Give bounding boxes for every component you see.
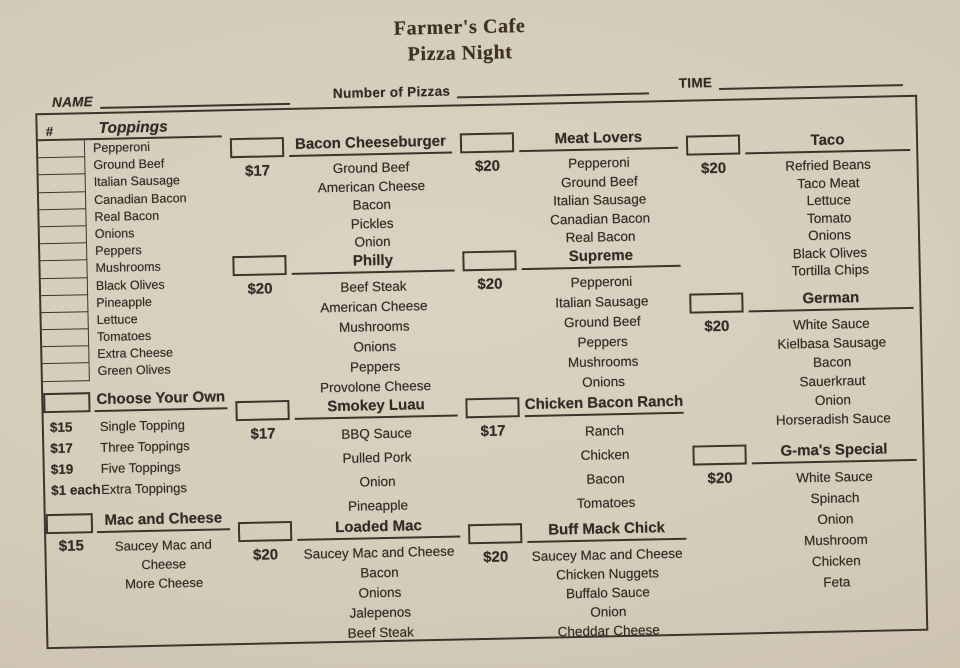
topping-label: Tomatoes <box>89 328 152 346</box>
pizza-name: G-ma's Special <box>751 439 916 463</box>
pizza-name: Loaded Mac <box>297 516 460 540</box>
ingredient-line: Chicken <box>525 441 684 468</box>
ingredient-line: Feta <box>754 569 919 593</box>
ingredient-line: Cheddar Cheese <box>529 619 688 641</box>
quantity-box <box>689 292 743 313</box>
menu-grid: # Toppings Pepperoni Ground Beef Italian… <box>35 95 928 649</box>
pizza-ingredients: Saucey Mac and CheeseBaconOnionsJalepeno… <box>297 541 462 644</box>
ingredient-line: Beef Steak <box>299 621 462 644</box>
pizza-card-body: $20 PepperoniItalian SausageGround BeefP… <box>463 270 683 395</box>
pizza-price: $20 <box>238 544 294 645</box>
pizza-ingredients: PepperoniGround BeefItalian SausageCanad… <box>519 153 680 249</box>
paper-order-form: Farmer's Cafe Pizza Night NAME Number of… <box>0 0 960 668</box>
toppings-table-header: # Toppings <box>37 111 222 141</box>
ingredient-line: Onion <box>296 468 459 495</box>
topping-count-box <box>39 175 86 193</box>
pizza-card-head: German <box>689 287 913 313</box>
pizza-column-3: Meat Lovers $20 PepperoniGround BeefItal… <box>451 102 688 639</box>
pizza-ingredients: PepperoniItalian SausageGround BeefPeppe… <box>522 270 683 393</box>
pizza-card-body: $20 Beef SteakAmerican CheeseMushroomsOn… <box>233 275 457 400</box>
pizza-card: Loaded Mac $20 Saucey Mac and CheeseBaco… <box>238 516 463 646</box>
quantity-box <box>460 132 514 153</box>
pizza-card-head: G-ma's Special <box>692 439 916 465</box>
quantity-box <box>46 513 93 534</box>
option-price: $19 <box>45 461 101 477</box>
pizza-card-body: $20 Saucey Mac and CheeseChicken Nuggets… <box>468 543 688 643</box>
ingredient-line: Onions <box>524 370 683 393</box>
topping-label: Pepperoni <box>85 139 150 158</box>
price-option-row: $1 each Extra Toppings <box>45 476 229 501</box>
choose-your-own-head: Choose Your Own <box>43 388 227 413</box>
pizza-price: $20 <box>460 156 516 250</box>
pizza-name: Meat Lovers <box>519 128 678 152</box>
option-price: $15 <box>44 419 100 435</box>
choose-your-own-options: $15 Single Topping $17 Three Toppings $1… <box>44 413 230 501</box>
quantity-box <box>462 250 516 271</box>
pizza-card-body: $17 Ground BeefAmerican CheeseBaconPickl… <box>230 158 454 255</box>
topping-label: Extra Cheese <box>89 345 173 364</box>
topping-count-box <box>43 364 90 382</box>
mac-and-cheese-title: Mac and Cheese <box>97 509 230 533</box>
number-of-pizzas-write-in-line <box>457 79 649 98</box>
topping-label: Onions <box>87 225 135 243</box>
pizza-column-2: Bacon Cheeseburger $17 Ground BeefAmeric… <box>221 107 462 644</box>
ingredient-line: Tortilla Chips <box>748 260 913 281</box>
pizza-name: Supreme <box>521 245 680 269</box>
pizza-card-head: Bacon Cheeseburger <box>230 133 452 159</box>
ingredient-line: Saucey Mac and Cheese <box>527 543 686 565</box>
mac-and-cheese-ingredients: Saucey Mac and CheeseMore Cheese <box>96 534 231 594</box>
pizza-card-head: Buff Mack Chick <box>468 518 686 544</box>
pizza-card: German $20 White SauceKielbasa SausageBa… <box>689 287 916 431</box>
ingredient-line: More Cheese <box>97 572 231 594</box>
pizza-ingredients: Beef SteakAmerican CheeseMushroomsOnions… <box>292 275 457 398</box>
choose-your-own-section: Choose Your Own $15 Single Topping $17 T… <box>43 388 229 501</box>
pizza-card-body: $17 BBQ SaucePulled PorkOnionPineapple <box>236 420 460 521</box>
pizza-card: Buff Mack Chick $20 Saucey Mac and Chees… <box>468 518 688 643</box>
ingredient-line: Pineapple <box>296 492 459 519</box>
pizza-card-head: Chicken Bacon Ranch <box>465 392 683 418</box>
choose-your-own-title: Choose Your Own <box>94 388 227 412</box>
toppings-column: # Toppings Pepperoni Ground Beef Italian… <box>37 111 232 647</box>
pizza-card: Meat Lovers $20 PepperoniGround BeefItal… <box>460 128 680 250</box>
pizza-ingredients: BBQ SaucePulled PorkOnionPineapple <box>295 420 460 519</box>
ingredient-line: Saucey Mac and Cheese <box>96 534 231 575</box>
topping-label: Italian Sausage <box>86 173 181 192</box>
number-of-pizzas-field: Number of Pizzas <box>333 79 650 101</box>
toppings-column-header: Toppings <box>98 118 168 137</box>
topping-count-box <box>38 140 85 158</box>
pizza-price: $17 <box>466 421 522 518</box>
pizza-name: Smokey Luau <box>294 395 457 419</box>
topping-count-box <box>40 261 87 279</box>
pizza-price: $17 <box>230 161 286 255</box>
pizza-card-body: $20 Refried BeansTaco MeatLettuceTomatoO… <box>686 155 913 282</box>
topping-label: Ground Beef <box>85 156 164 175</box>
topping-label: Peppers <box>87 242 142 260</box>
ingredient-line: Horseradish Sauce <box>751 407 916 429</box>
pizza-card: Chicken Bacon Ranch $17 RanchChickenBaco… <box>465 392 685 518</box>
quantity-box <box>686 135 740 156</box>
topping-count-box <box>41 312 88 330</box>
topping-label: Real Bacon <box>86 207 159 226</box>
ingredient-line: Pulled Pork <box>295 444 458 471</box>
quantity-box <box>232 255 286 276</box>
pizza-card-body: $20 White SauceKielbasa SausageBaconSaue… <box>690 312 916 431</box>
ingredient-line: Ranch <box>525 417 684 444</box>
quantity-box <box>235 400 289 421</box>
quantity-box <box>238 520 292 541</box>
pizza-card-head: Taco <box>686 130 910 156</box>
pizza-card-body: $20 Saucey Mac and CheeseBaconOnionsJale… <box>238 541 462 646</box>
mac-and-cheese-section: Mac and Cheese $15 Saucey Mac and Cheese… <box>46 509 232 595</box>
topping-label: Black Olives <box>88 276 165 295</box>
pizza-name: German <box>748 287 913 311</box>
topping-label: Lettuce <box>88 311 137 329</box>
topping-label: Mushrooms <box>87 259 161 278</box>
form-header: Farmer's Cafe Pizza Night <box>0 5 926 77</box>
pizza-card: Supreme $20 PepperoniItalian SausageGrou… <box>462 245 683 395</box>
option-price: $1 each <box>45 482 101 498</box>
topping-count-box <box>42 329 89 347</box>
pizza-price: $17 <box>236 424 292 521</box>
ingredient-line: BBQ Sauce <box>295 420 458 447</box>
topping-count-box <box>39 192 86 210</box>
name-write-in-line <box>100 90 290 109</box>
topping-count-box <box>41 278 88 296</box>
pizza-ingredients: White SauceKielbasa SausageBaconSauerkra… <box>749 312 916 429</box>
pizza-card: G-ma's Special $20 White SauceSpinachOni… <box>692 439 919 595</box>
topping-count-box <box>42 346 89 364</box>
pizza-name: Taco <box>745 130 910 154</box>
pizza-price: $20 <box>468 547 524 643</box>
pizza-price: $20 <box>463 274 520 395</box>
topping-row: Green Olives <box>43 361 227 382</box>
pizza-price: $20 <box>693 468 750 595</box>
mac-and-cheese-price: $15 <box>46 537 97 595</box>
ingredient-line: Tomatoes <box>526 489 685 516</box>
option-label: Single Topping <box>100 417 185 434</box>
pizza-name: Chicken Bacon Ranch <box>524 392 683 416</box>
option-label: Five Toppings <box>101 459 181 476</box>
quantity-box <box>43 392 90 413</box>
mac-and-cheese-head: Mac and Cheese <box>46 509 230 534</box>
pizza-ingredients: RanchChickenBaconTomatoes <box>525 417 686 516</box>
topping-count-box <box>40 243 87 261</box>
pizza-name: Philly <box>291 250 454 274</box>
quantity-box <box>468 523 522 544</box>
quantity-box <box>465 397 519 418</box>
topping-label: Canadian Bacon <box>86 190 187 209</box>
pizza-card-head: Meat Lovers <box>460 128 678 154</box>
name-label: NAME <box>52 94 93 110</box>
pizza-ingredients: White SauceSpinachOnionMushroomChickenFe… <box>752 464 920 593</box>
pizza-name: Buff Mack Chick <box>527 518 686 542</box>
pizza-card-body: $17 RanchChickenBaconTomatoes <box>466 417 686 518</box>
quantity-box <box>230 137 284 158</box>
topping-count-box <box>38 157 85 175</box>
topping-count-box <box>39 209 86 227</box>
option-label: Extra Toppings <box>101 480 187 497</box>
pizza-price: $20 <box>233 279 290 400</box>
name-field: NAME <box>52 90 290 110</box>
pizza-card: Philly $20 Beef SteakAmerican CheeseMush… <box>232 250 457 400</box>
topping-count-box <box>41 295 88 313</box>
option-price: $17 <box>44 440 100 456</box>
topping-count-box <box>40 226 87 244</box>
ingredient-line: Saucey Mac and Cheese <box>297 541 460 564</box>
time-field: TIME <box>679 71 904 91</box>
time-write-in-line <box>719 71 903 90</box>
option-label: Three Toppings <box>100 438 190 455</box>
ingredient-line: Bacon <box>526 465 685 492</box>
toppings-list: Pepperoni Ground Beef Italian Sausage Ca… <box>38 137 227 381</box>
pizza-card-body: $20 White SauceSpinachOnionMushroomChick… <box>693 464 920 595</box>
topping-label: Pineapple <box>88 294 152 313</box>
quantity-box <box>692 444 746 465</box>
pizza-name: Bacon Cheeseburger <box>289 133 452 157</box>
pizza-ingredients: Ground BeefAmerican CheeseBaconPicklesOn… <box>289 158 454 254</box>
pizza-card: Taco $20 Refried BeansTaco MeatLettuceTo… <box>686 130 913 282</box>
pizza-card: Smokey Luau $17 BBQ SaucePulled PorkOnio… <box>235 395 459 521</box>
topping-label: Green Olives <box>90 362 171 381</box>
pizza-price: $20 <box>690 316 746 431</box>
pizza-column-4: Taco $20 Refried BeansTaco MeatLettuceTo… <box>677 97 926 634</box>
pizza-ingredients: Saucey Mac and CheeseChicken NuggetsBuff… <box>527 543 688 641</box>
mac-and-cheese-body: $15 Saucey Mac and CheeseMore Cheese <box>46 534 231 595</box>
time-label: TIME <box>679 75 713 91</box>
pizza-price: $20 <box>686 159 743 283</box>
pizza-card: Bacon Cheeseburger $17 Ground BeefAmeric… <box>230 133 454 255</box>
pizza-card-body: $20 PepperoniGround BeefItalian SausageC… <box>460 153 680 250</box>
count-column-header: # <box>38 123 85 139</box>
pizza-ingredients: Refried BeansTaco MeatLettuceTomatoOnion… <box>745 155 913 281</box>
number-of-pizzas-label: Number of Pizzas <box>333 84 451 101</box>
